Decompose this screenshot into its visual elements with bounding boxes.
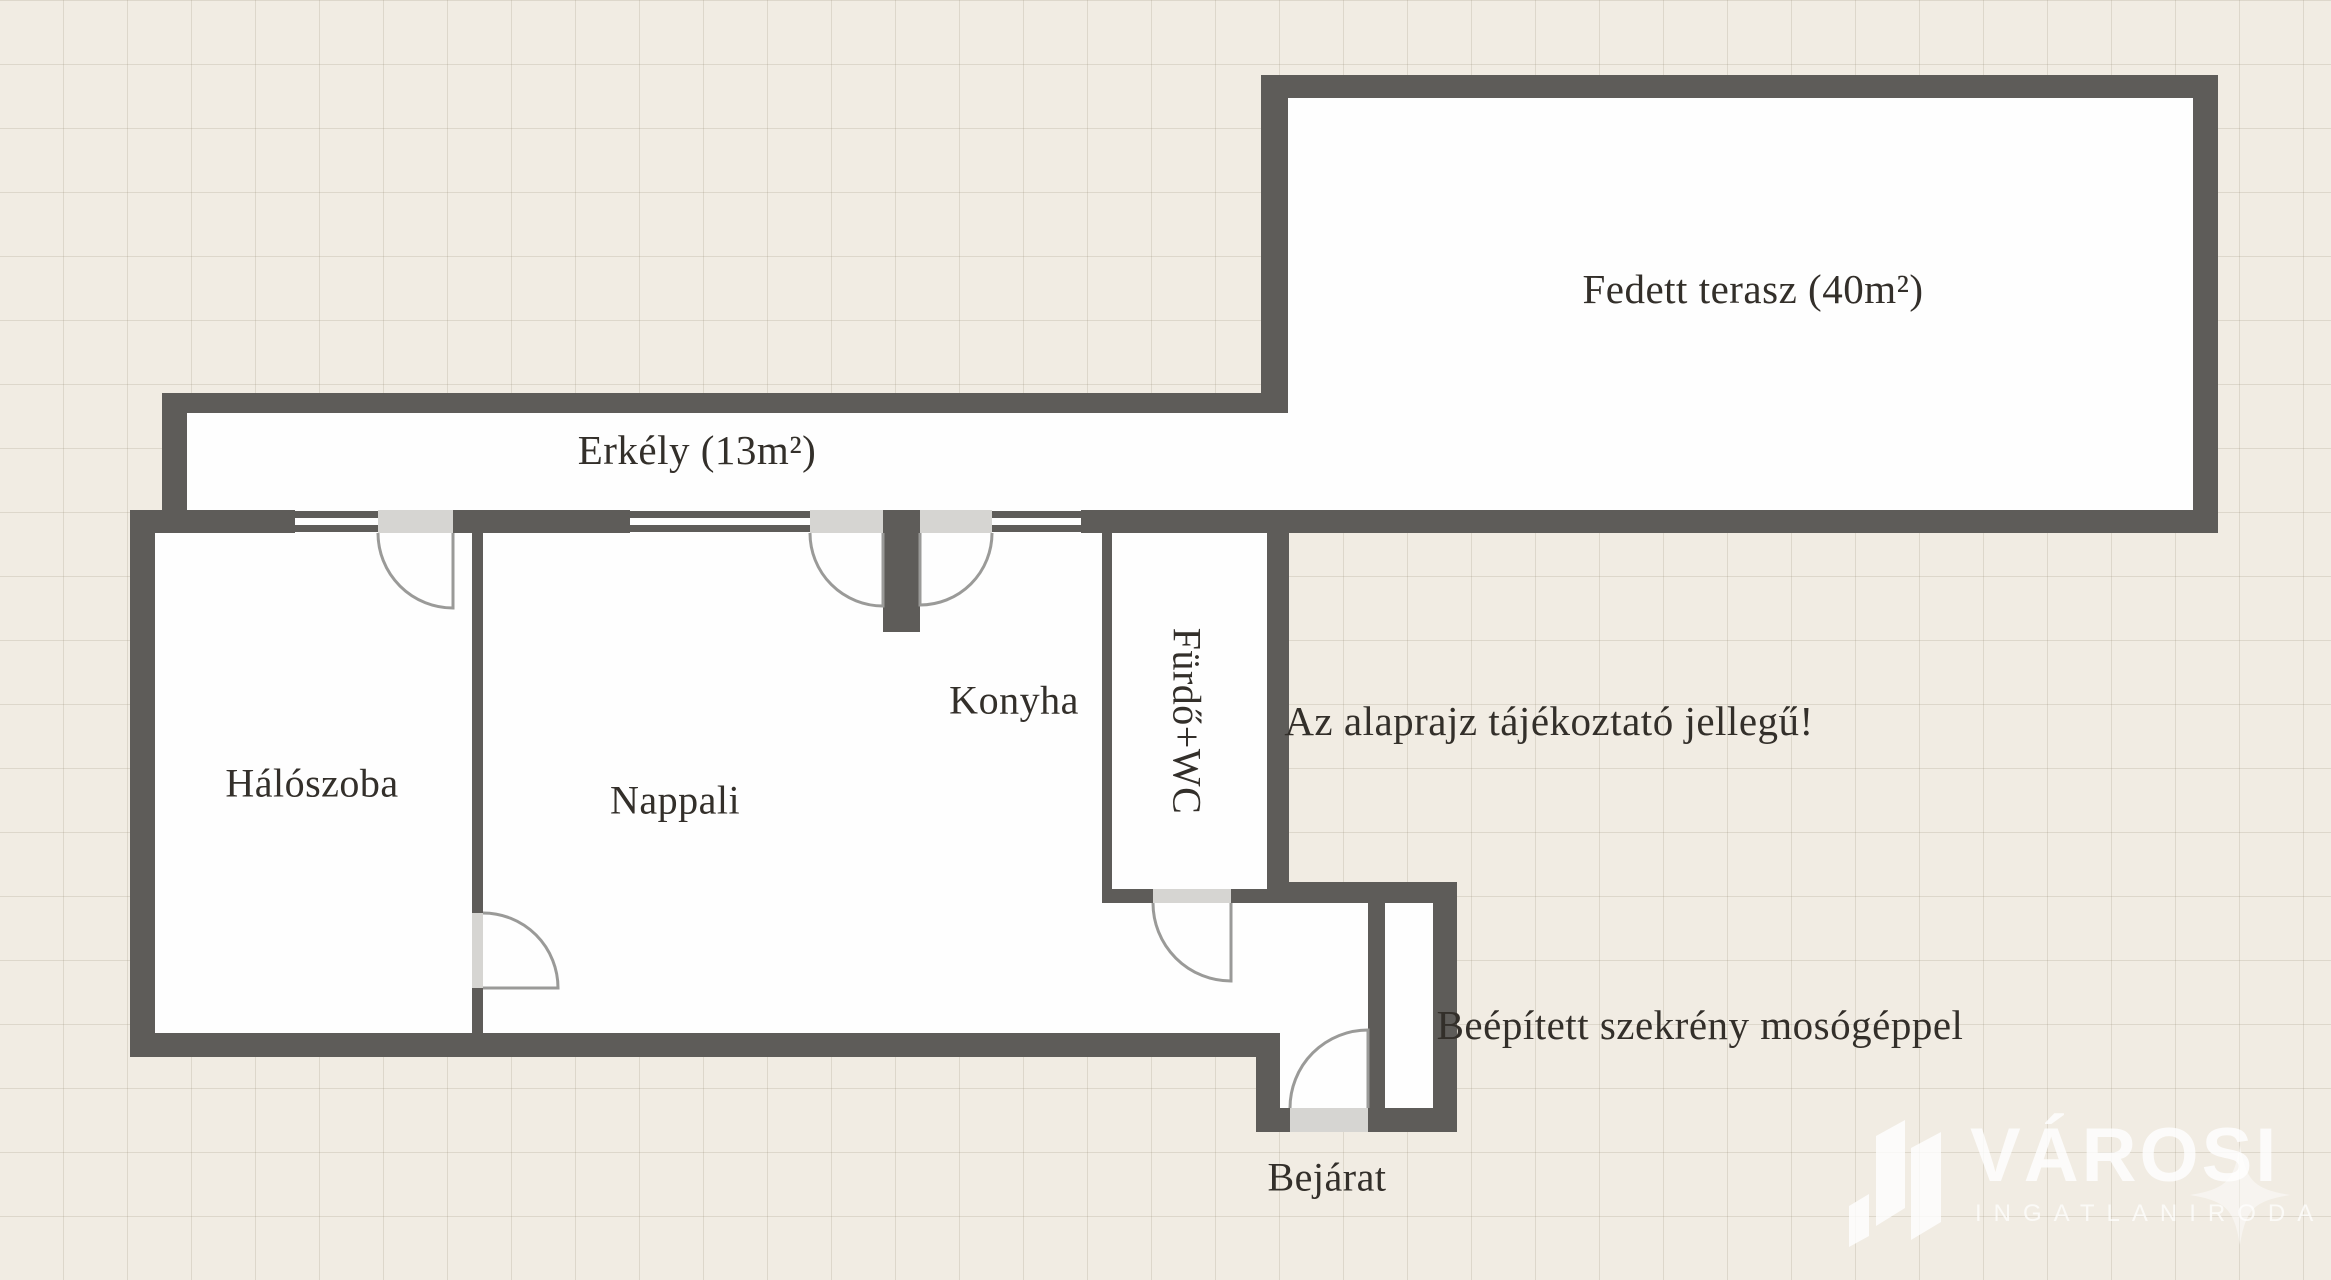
balcony-floor — [187, 413, 2193, 510]
top-wall-and-terrace-bottom-wall — [1081, 510, 2218, 533]
balcony-left-wall — [162, 393, 187, 510]
terrace-left-wall — [1261, 75, 1288, 413]
logo-subtitle-text: INGATLANIRODA — [1975, 1200, 2325, 1228]
label-balcony: Erkély (13m²) — [578, 426, 817, 474]
building-slab-tall — [1876, 1120, 1905, 1226]
living-window — [630, 510, 810, 533]
extension-left-wall — [1256, 1033, 1280, 1132]
bathroom-door-opening — [1153, 889, 1231, 903]
window-line — [295, 511, 378, 518]
apartment-left-wall — [130, 510, 155, 1057]
label-kitchen: Konyha — [949, 677, 1079, 724]
apartment-bottom-wall — [130, 1033, 1256, 1057]
building-slab-mid — [1911, 1132, 1941, 1240]
top-wall-segment — [453, 510, 630, 533]
balcony-outer-wall — [162, 393, 1288, 413]
extension-bottom-wall-segment — [1368, 1108, 1457, 1132]
entrance-door-opening — [1290, 1108, 1368, 1132]
living-balcony-door-opening — [810, 510, 883, 533]
bathroom-bottom-wall-segment — [1102, 889, 1153, 903]
label-entrance: Bejárat — [1268, 1154, 1387, 1201]
bedroom-balcony-door-opening — [378, 510, 453, 533]
terrace-right-wall — [2193, 75, 2218, 533]
bedroom-partition-lower — [472, 988, 483, 1033]
annotation-built-in-closet: Beépített szekrény mosógéppel — [1437, 1001, 1964, 1049]
entry-extension-floor — [1267, 903, 1433, 1108]
label-bathroom-wc: Fürdő+WC — [1164, 628, 1211, 815]
varosi-building-icon — [1845, 1110, 1955, 1250]
varosi-logo: VÁROSI INGATLANIRODA — [1845, 1100, 2315, 1260]
kitchen-balcony-door-opening — [920, 510, 992, 533]
bedroom-door-opening — [472, 913, 483, 988]
bathroom-left-wall — [1102, 533, 1112, 903]
kitchen-window — [992, 510, 1081, 533]
bedroom-partition-upper — [472, 533, 483, 913]
floorplan-canvas: Fedett terasz (40m²) Erkély (13m²) Hálós… — [0, 0, 2331, 1280]
window-line — [630, 525, 810, 532]
label-bedroom: Hálószoba — [225, 760, 398, 807]
kitchen-stub-wall — [883, 533, 920, 632]
logo-brand-text: VÁROSI — [1970, 1118, 2279, 1194]
building-slab-small — [1849, 1194, 1869, 1247]
closet-divider-wall — [1368, 903, 1385, 1108]
label-covered-terrace: Fedett terasz (40m²) — [1582, 265, 1923, 313]
top-wall-segment — [883, 510, 920, 533]
window-line — [992, 511, 1081, 518]
extension-top-wall — [1267, 882, 1457, 903]
bathroom-bottom-wall-segment — [1231, 889, 1267, 903]
annotation-disclaimer: Az alaprajz tájékoztató jellegű! — [1284, 697, 1813, 745]
window-line — [992, 525, 1081, 532]
terrace-top-wall — [1261, 75, 2218, 98]
window-line — [295, 525, 378, 532]
label-living-room: Nappali — [610, 777, 740, 824]
bedroom-window — [295, 510, 378, 533]
window-line — [630, 511, 810, 518]
